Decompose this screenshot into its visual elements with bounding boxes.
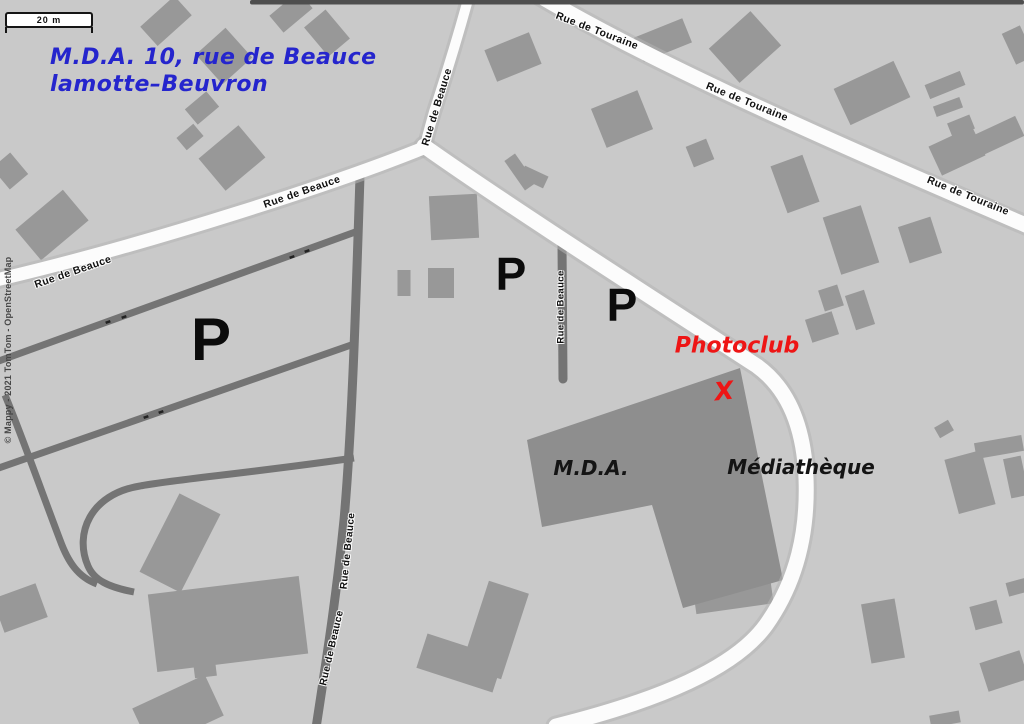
mda-label: M.D.A.: [553, 456, 628, 480]
street-label: Rue de Touraine: [554, 10, 640, 53]
photoclub-label: Photoclub: [675, 334, 800, 359]
street-label: Rue de Beauce: [339, 512, 358, 590]
street-label-layer: Rue de TouraineRue de TouraineRue de Tou…: [0, 0, 1024, 724]
mediatheque-label: Médiathèque: [727, 455, 875, 479]
parking-symbol: P: [191, 310, 231, 370]
street-label: Rue de Beauce: [318, 609, 346, 686]
map-image: Rue de TouraineRue de TouraineRue de Tou…: [0, 0, 1024, 724]
street-label: Rue de Beauce: [262, 173, 342, 211]
scale-bar: 20 m: [5, 12, 93, 28]
street-label: Rue de Touraine: [704, 80, 790, 124]
scale-bar-label: 20 m: [37, 15, 62, 25]
parking-symbol: P: [607, 282, 638, 328]
street-label: Rue de Beauce: [33, 253, 113, 291]
address-line-2: lamotte–Beuvron: [50, 71, 377, 98]
street-label: Rue de Beauce: [419, 67, 454, 147]
copyright-text: © Mappy - 2021 TomTom - OpenStreetMap: [3, 257, 13, 444]
x-marker: X: [713, 376, 735, 407]
street-label: Rue de Beauce: [556, 270, 567, 343]
address-annotation: M.D.A. 10, rue de Beauce lamotte–Beuvron: [50, 44, 377, 98]
street-label: Rue de Touraine: [925, 174, 1011, 218]
parking-symbol: P: [496, 251, 527, 297]
address-line-1: M.D.A. 10, rue de Beauce: [50, 44, 377, 71]
